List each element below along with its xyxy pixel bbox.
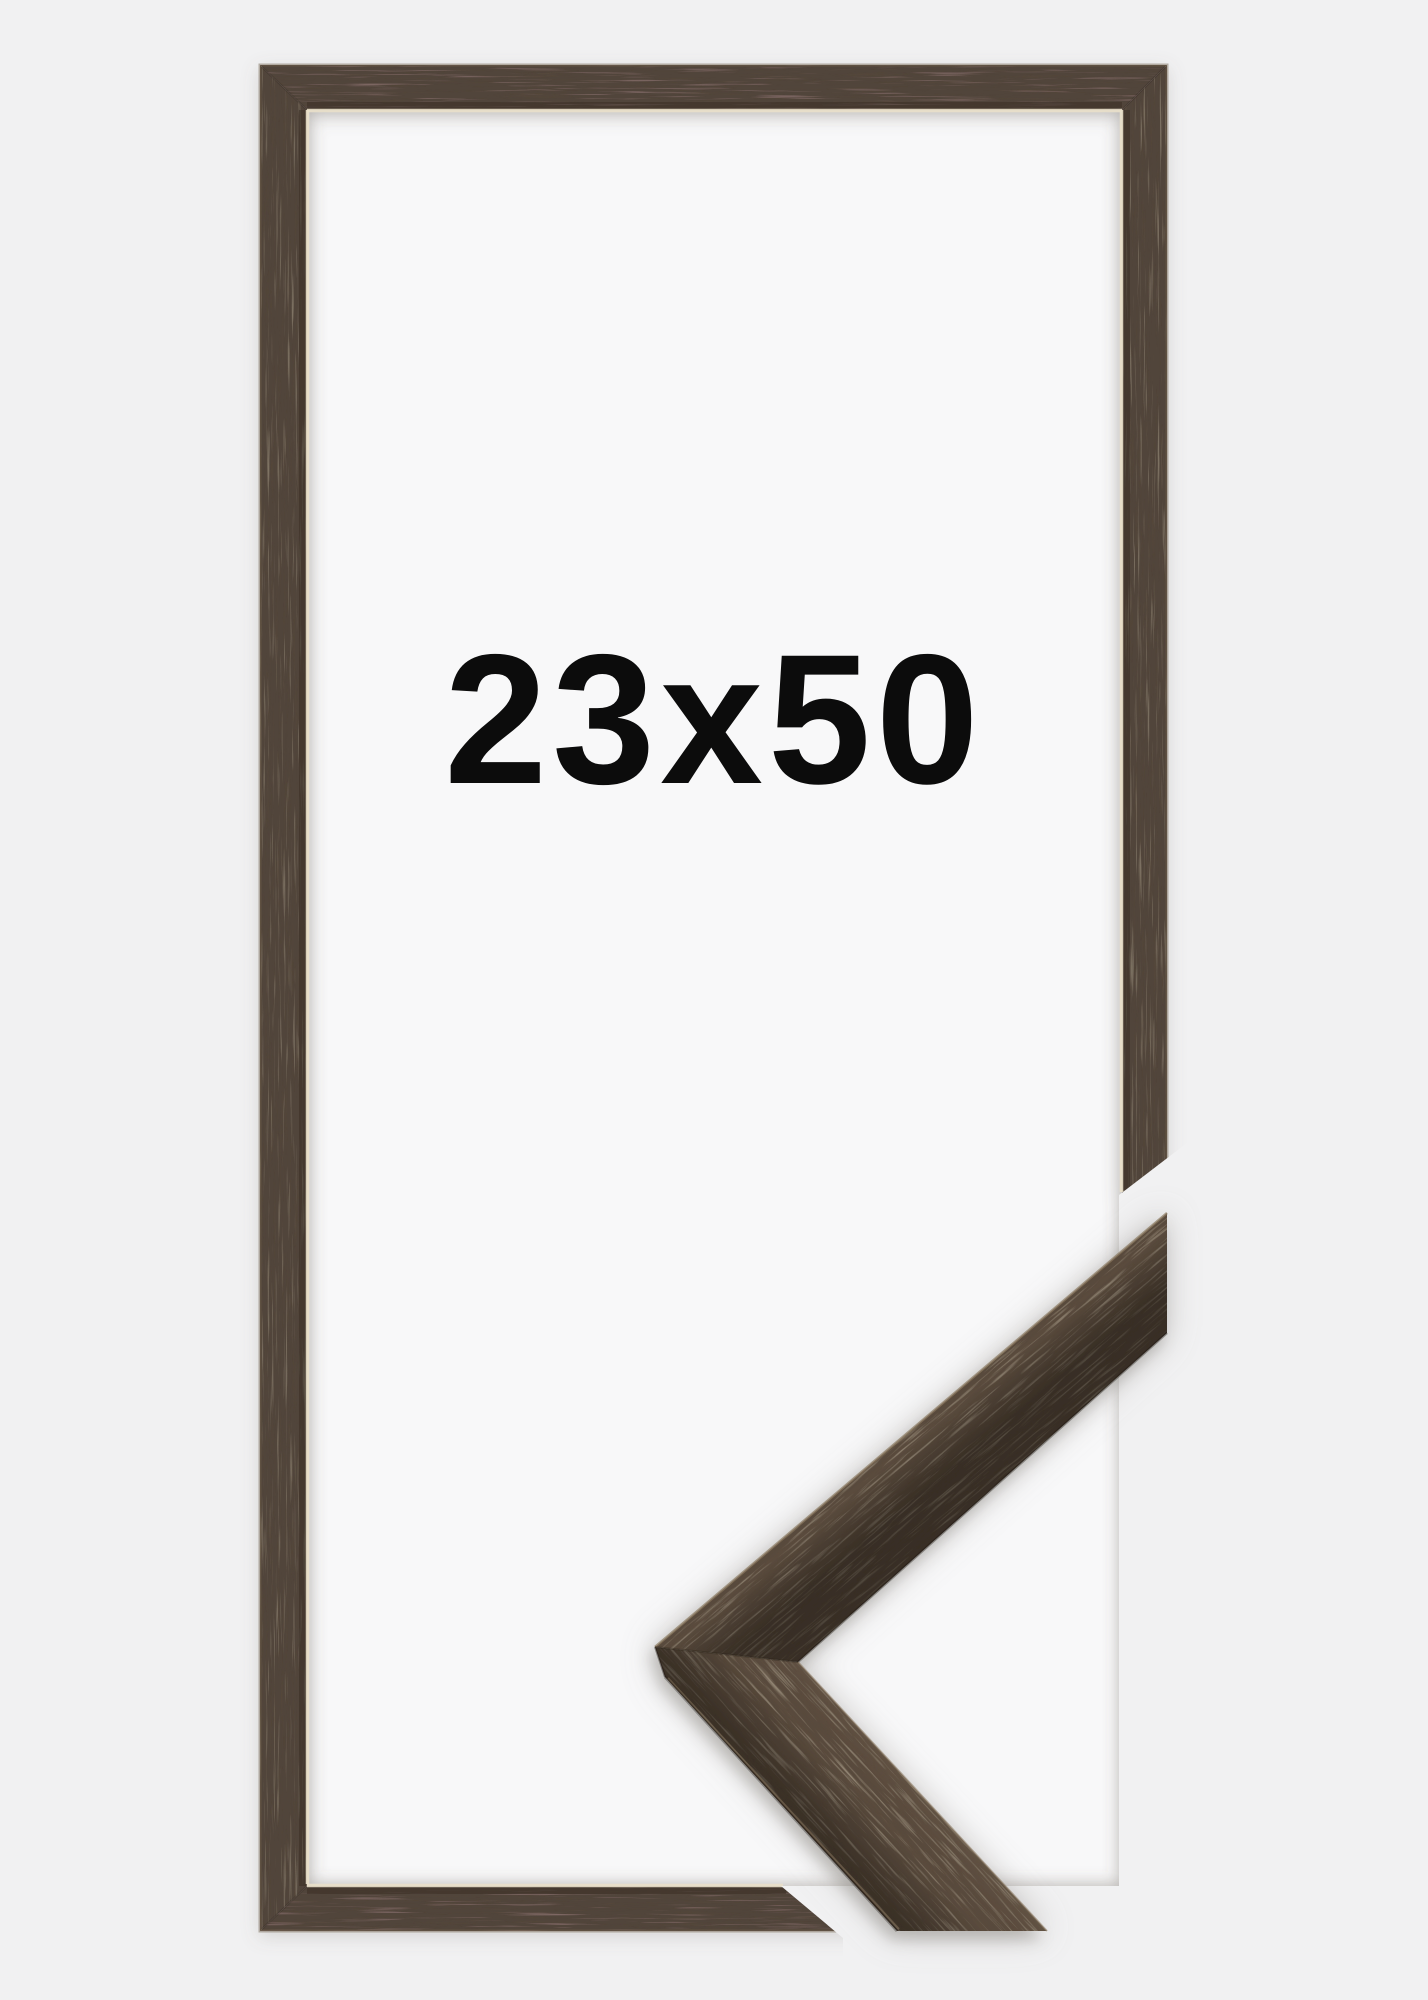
- size-label: 23x50: [444, 617, 983, 823]
- frame-photo-canvas: 23x50: [0, 0, 1428, 2000]
- product-image: 23x50: [0, 0, 1428, 2000]
